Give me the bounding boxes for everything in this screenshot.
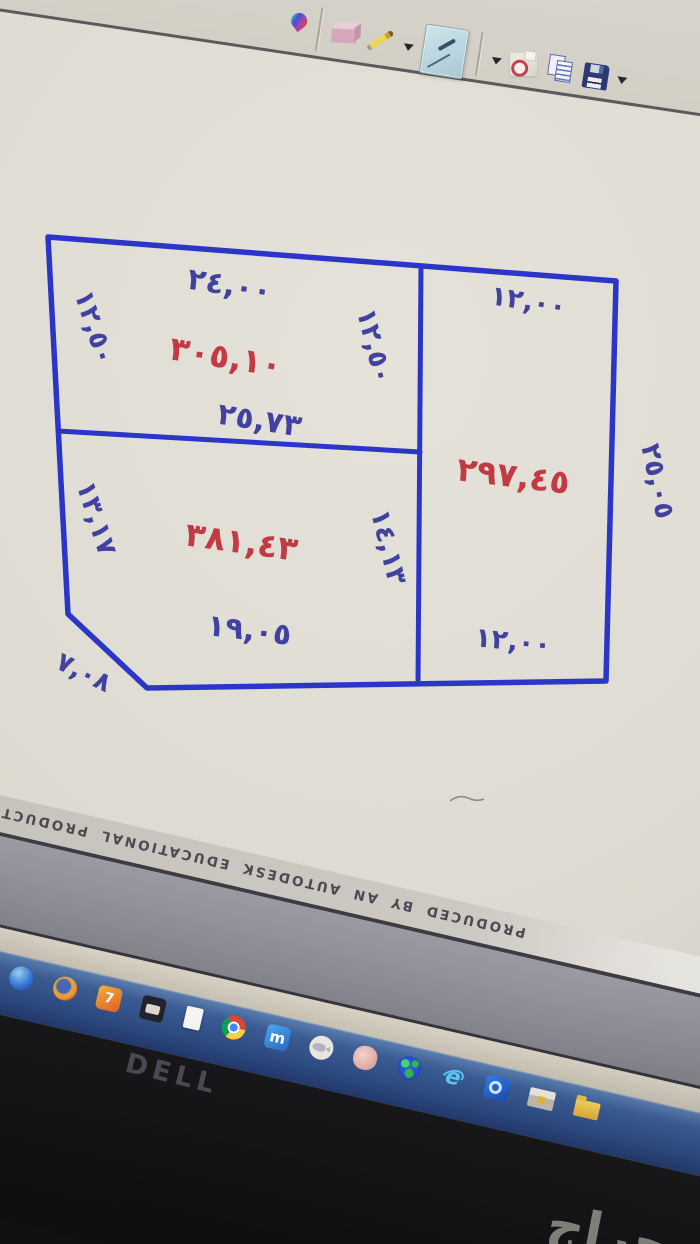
pencil-icon[interactable] [366,30,394,51]
color-drop-icon[interactable] [288,10,310,32]
dropdown-icon[interactable] [403,43,414,51]
dropdown-icon[interactable] [491,56,502,64]
photo-of-monitor: ٢٤,٠٠١٢,٥٠٣٠٥,١٠٢٥,٧٣١٢,٥٠١٢,٠٠٢٩٧,٤٥٢٥,… [0,0,700,1244]
blue-sphere-icon[interactable] [7,964,36,993]
earth-globe-icon[interactable] [395,1054,424,1083]
yellow-folder-icon[interactable] [573,1098,601,1120]
firefox-icon[interactable] [51,974,80,1003]
chrome-icon[interactable] [219,1013,248,1042]
save-icon[interactable] [582,62,611,91]
internet-explorer-icon[interactable]: e [439,1064,468,1093]
stamp-icon[interactable] [510,52,537,75]
separator-icon [315,7,324,51]
briefcase-icon[interactable] [527,1087,557,1111]
haraj-watermark: حراج [542,1194,676,1244]
orange-seven-icon[interactable]: 7 [95,984,124,1013]
eraser-cube-icon[interactable] [331,27,357,43]
dark-wallet-icon[interactable] [138,994,167,1023]
separator-icon [475,32,484,76]
dropdown-icon[interactable] [617,76,628,84]
pink-brain-icon[interactable] [351,1044,380,1073]
copy-icon[interactable] [544,53,577,85]
blue-m-icon[interactable]: m [263,1023,292,1052]
outlook-icon[interactable] [482,1074,511,1103]
white-file-icon[interactable] [182,1006,204,1031]
active-draw-tool-icon[interactable] [419,23,470,79]
light-fish-icon[interactable] [307,1033,336,1062]
